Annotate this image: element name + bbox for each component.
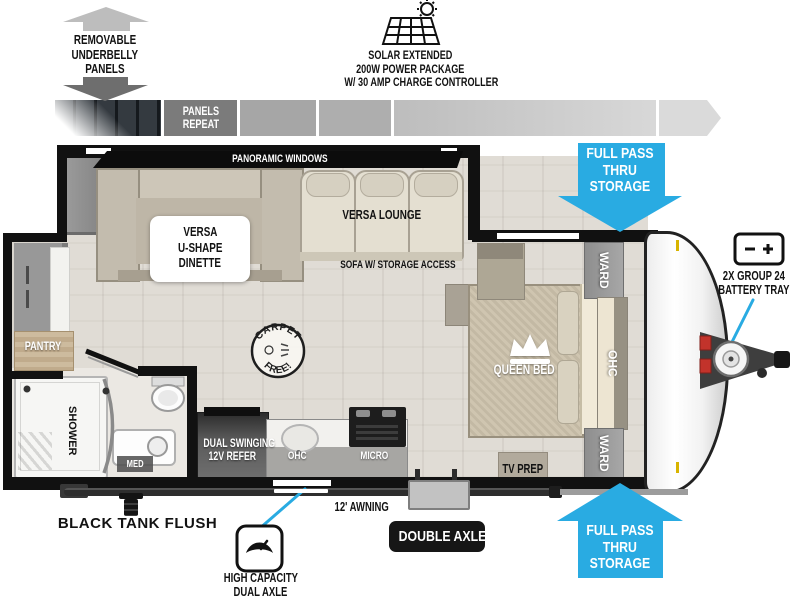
dinette-line: U-SHAPE xyxy=(178,240,222,256)
micro-label: MICRO xyxy=(344,450,404,462)
sofa-storage-label: SOFA W/ STORAGE ACCESS xyxy=(322,259,446,271)
dinette-left-bench xyxy=(96,168,140,282)
shower-ridges xyxy=(18,432,52,470)
wardrobe-front-bottom: WARD xyxy=(584,428,624,478)
solar-line: 200W POWER PACKAGE xyxy=(356,63,464,77)
tongue-jack-wheel xyxy=(757,368,767,378)
clearance-light xyxy=(676,240,679,251)
high-capacity-line: HIGH CAPACITY xyxy=(224,571,298,585)
entry-steps xyxy=(408,480,470,510)
wall-step-vertical xyxy=(468,145,480,240)
battery-callout-line xyxy=(728,300,753,350)
shower-label: SHOWER xyxy=(64,400,80,462)
storage-bottom-label: FULL PASS THRU STORAGE xyxy=(574,523,666,573)
high-capacity-label: HIGH CAPACITY DUAL AXLE xyxy=(212,571,308,599)
med-cabinet-label-box: MED xyxy=(117,456,153,472)
underbelly-line: PANELS xyxy=(85,62,124,77)
double-axle-badge: DOUBLE AXLE xyxy=(389,521,485,552)
vanity-sink xyxy=(147,436,168,457)
versa-lounge-label: VERSA LOUNGE xyxy=(318,207,446,222)
clearance-light xyxy=(676,462,679,473)
arrow-down-icon xyxy=(63,77,148,101)
refer-line: DUAL SWINGING xyxy=(203,438,275,451)
arrow-up-icon xyxy=(63,7,149,31)
frame-rail xyxy=(560,489,688,495)
wall-bath-top-left xyxy=(3,371,63,379)
storage-top-line: FULL PASS xyxy=(586,146,653,163)
storage-top-line: STORAGE xyxy=(590,179,651,196)
refrigerator-top xyxy=(204,407,260,416)
bed-pillow xyxy=(557,291,579,355)
panels-strip-arrow-end xyxy=(659,100,721,136)
storage-top-line: THRU xyxy=(603,163,637,180)
wardrobe-front-top: WARD xyxy=(584,242,624,299)
underbelly-line: REMOVABLE xyxy=(74,33,136,48)
awning-marker xyxy=(274,489,328,493)
sofa-headrest xyxy=(360,173,404,197)
front-cabinet-top-shade xyxy=(477,243,523,259)
ward-rear-label: WARD xyxy=(597,435,611,472)
pantry-handle xyxy=(26,266,29,284)
bed-overhead-cabinet: OHC xyxy=(597,297,628,430)
storage-bottom-line: FULL PASS xyxy=(586,523,653,540)
rv-floorplan-diagram: WARD OHC WARD MED xyxy=(0,0,800,600)
ohc-front-label: OHC xyxy=(606,350,620,377)
tv-prep-label: TV PREP xyxy=(488,462,558,476)
black-tank-flush-label: BLACK TANK FLUSH xyxy=(55,515,220,532)
wall-bumpout-left xyxy=(3,233,12,487)
dinette-right-bench xyxy=(260,168,304,282)
window-slit-bed xyxy=(497,233,579,239)
wall-bumpout-top xyxy=(3,233,63,242)
queen-bed-label: QUEEN BED xyxy=(466,362,582,377)
ward-front-label: WARD xyxy=(597,252,611,289)
entry-step-rail xyxy=(415,469,420,480)
panoramic-windows-label: PANORAMIC WINDOWS xyxy=(180,153,380,165)
solar-panel-sun-icon xyxy=(383,0,439,44)
storage-bottom-line: THRU xyxy=(603,540,637,557)
underbelly-callout: REMOVABLE UNDERBELLY PANELS xyxy=(50,33,160,77)
dinette-line: DINETTE xyxy=(179,255,221,271)
refer-line: 12V REFER xyxy=(208,451,256,464)
underbelly-panels-graphic xyxy=(55,100,161,136)
refer-label: DUAL SWINGING 12V REFER xyxy=(192,438,272,464)
kitchen-sink xyxy=(281,424,319,453)
stove-knob xyxy=(382,410,396,417)
storage-top-label: FULL PASS THRU STORAGE xyxy=(574,146,666,196)
med-label: MED xyxy=(127,459,144,470)
dinette-line: VERSA xyxy=(183,224,217,240)
stove-knob xyxy=(356,410,370,417)
underbelly-line: UNDERBELLY xyxy=(72,48,139,63)
panels-strip-segment xyxy=(319,100,391,136)
kitchen-ohc-label: OHC xyxy=(272,450,322,462)
panels-strip-segment xyxy=(240,100,316,136)
battery-line: BATTERY TRAY xyxy=(718,283,789,297)
solar-line: SOLAR EXTENDED xyxy=(368,49,452,63)
battery-callout-label: 2X GROUP 24 BATTERY TRAY xyxy=(706,269,800,297)
stove-grate xyxy=(356,422,398,440)
pantry-label: PANTRY xyxy=(16,339,70,353)
panels-repeat-line: REPEAT xyxy=(182,118,218,131)
panels-strip-segment xyxy=(394,100,656,136)
sofa-headrest xyxy=(306,173,350,197)
wall-left-main xyxy=(57,145,67,242)
storage-bottom-line: STORAGE xyxy=(590,556,651,573)
solar-line: W/ 30 AMP CHARGE CONTROLLER xyxy=(344,76,498,90)
dinette-label: VERSA U-SHAPE DINETTE xyxy=(150,224,250,271)
panels-repeat-box: PANELS REPEAT xyxy=(164,100,237,136)
axle-weight-scale-icon xyxy=(237,526,282,571)
solar-callout: SOLAR EXTENDED 200W POWER PACKAGE W/ 30 … xyxy=(320,49,500,90)
battery-line: 2X GROUP 24 xyxy=(723,269,785,283)
entry-step-rail xyxy=(452,469,457,480)
window-slit-kitchen xyxy=(273,480,331,486)
high-capacity-line: DUAL AXLE xyxy=(233,585,287,599)
pantry-handle xyxy=(26,290,29,308)
sofa-headrest xyxy=(414,173,458,197)
awning-label: 12' AWNING xyxy=(326,500,396,514)
black-tank-flush-valve-body xyxy=(124,499,138,516)
battery-minus-plus-icon xyxy=(735,234,783,264)
